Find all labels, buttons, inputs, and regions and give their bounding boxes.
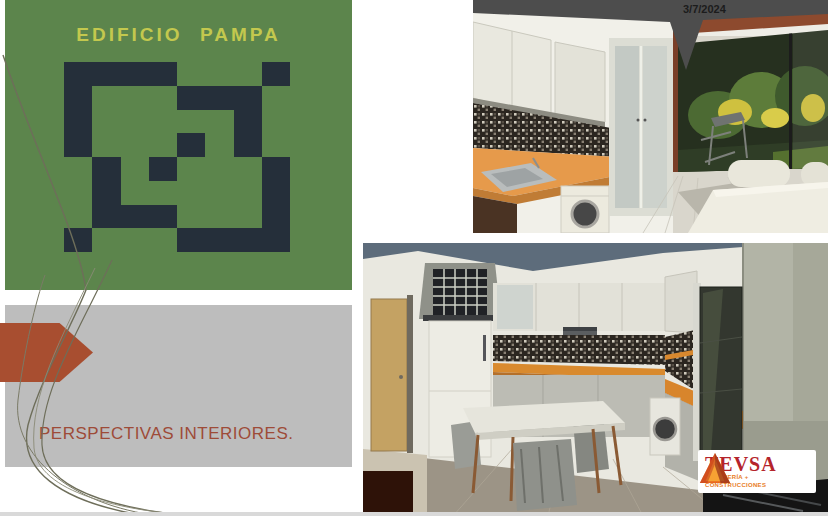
- logo-cell: [262, 228, 290, 252]
- logo-cell: [64, 228, 92, 252]
- logo-cell: [234, 157, 262, 181]
- logo-cell: [149, 62, 177, 86]
- logo-cell: [262, 205, 290, 229]
- project-title: EDIFICIO PAMPA: [5, 24, 352, 46]
- logo-cell: [92, 157, 120, 181]
- kitchen-interior-photo: TEVSA INGENIERÍA + CONSTRUCCIONES: [363, 243, 828, 516]
- logo-cell: [149, 205, 177, 229]
- logo-cell: [262, 110, 290, 134]
- wood-door: [371, 295, 413, 453]
- logo-cell: [64, 62, 92, 86]
- presentation-slide: EDIFICIO PAMPA PERSPECTIVAS INTERIORES.: [0, 0, 828, 516]
- logo-cell: [92, 228, 120, 252]
- logo-cell: [205, 133, 233, 157]
- logo-cell: [121, 228, 149, 252]
- dark-floor-patch: [363, 471, 413, 516]
- logo-cell: [64, 133, 92, 157]
- logo-cell: [234, 205, 262, 229]
- lattice-vent: [419, 263, 501, 321]
- tevsa-logo: TEVSA INGENIERÍA + CONSTRUCCIONES: [698, 450, 816, 493]
- logo-cell: [64, 205, 92, 229]
- logo-cell: [149, 157, 177, 181]
- tevsa-pyramid-icon: [698, 450, 732, 486]
- logo-cell: [92, 110, 120, 134]
- kitchen-patio-photo: 3/7/2024: [473, 0, 828, 233]
- pampa-maze-logo: [64, 62, 290, 252]
- logo-cell: [92, 86, 120, 110]
- logo-cell: [262, 133, 290, 157]
- logo-cell: [149, 110, 177, 134]
- logo-cell: [149, 86, 177, 110]
- logo-cell: [234, 228, 262, 252]
- logo-cell: [149, 228, 177, 252]
- washing-machine: [650, 398, 680, 455]
- logo-cell: [177, 157, 205, 181]
- logo-cell: [149, 133, 177, 157]
- logo-cell: [121, 110, 149, 134]
- logo-cell: [205, 181, 233, 205]
- logo-cell: [92, 62, 120, 86]
- slide-caption: PERSPECTIVAS INTERIORES.: [39, 424, 293, 444]
- logo-cell: [205, 62, 233, 86]
- logo-cell: [262, 181, 290, 205]
- logo-cell: [177, 86, 205, 110]
- logo-cell: [121, 205, 149, 229]
- logo-cell: [205, 86, 233, 110]
- logo-cell: [262, 86, 290, 110]
- tall-glass-cabinet: [609, 38, 673, 216]
- logo-cell: [205, 110, 233, 134]
- logo-cell: [234, 181, 262, 205]
- slide-bottom-edge: [0, 512, 828, 516]
- logo-cell: [234, 86, 262, 110]
- logo-cell: [205, 157, 233, 181]
- logo-cell: [177, 228, 205, 252]
- logo-cell: [177, 133, 205, 157]
- logo-cell: [92, 133, 120, 157]
- project-banner: EDIFICIO PAMPA: [5, 0, 352, 290]
- logo-cell: [234, 62, 262, 86]
- logo-cell: [234, 133, 262, 157]
- logo-cell: [205, 228, 233, 252]
- logo-cell: [64, 86, 92, 110]
- logo-cell: [121, 86, 149, 110]
- dark-glass-cabinet: [700, 287, 742, 459]
- washing-machine: [561, 186, 609, 233]
- logo-cell: [92, 181, 120, 205]
- logo-cell: [234, 110, 262, 134]
- caption-panel: PERSPECTIVAS INTERIORES.: [5, 305, 352, 467]
- logo-cell: [177, 205, 205, 229]
- logo-cell: [262, 157, 290, 181]
- logo-cell: [177, 62, 205, 86]
- kitchen-patio-render: [473, 0, 828, 233]
- logo-cell: [92, 205, 120, 229]
- logo-cell: [121, 181, 149, 205]
- logo-cell: [262, 62, 290, 86]
- logo-cell: [64, 157, 92, 181]
- logo-cell: [149, 181, 177, 205]
- logo-cell: [177, 110, 205, 134]
- logo-cell: [64, 181, 92, 205]
- logo-cell: [64, 110, 92, 134]
- upper-cabinets-right: [665, 271, 697, 333]
- logo-cell: [177, 181, 205, 205]
- logo-cell: [121, 157, 149, 181]
- mosaic-back: [493, 335, 665, 365]
- logo-cell: [121, 133, 149, 157]
- logo-cell: [205, 205, 233, 229]
- slide-date: 3/7/2024: [683, 3, 726, 15]
- logo-cell: [121, 62, 149, 86]
- arrow-marker-icon: [0, 323, 93, 382]
